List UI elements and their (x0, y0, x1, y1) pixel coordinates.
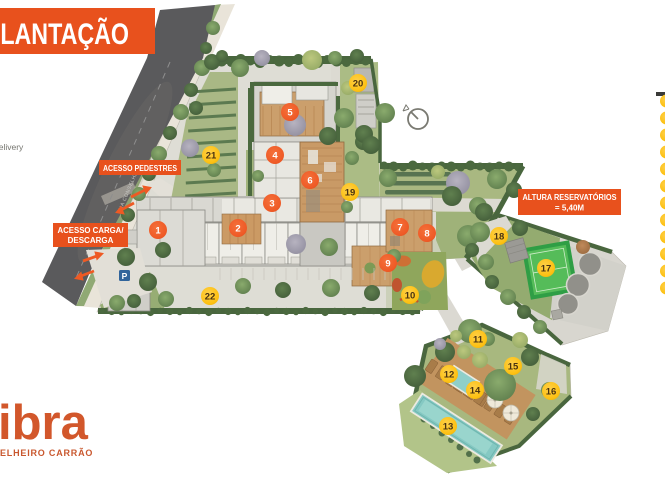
svg-text:IMPLANTAÇÃO: IMPLANTAÇÃO (0, 17, 129, 51)
svg-text:ELHEIRO CARRÃO: ELHEIRO CARRÃO (0, 448, 93, 458)
svg-text:19: 19 (345, 187, 356, 198)
svg-text:20: 20 (353, 78, 364, 89)
svg-text:4: 4 (272, 150, 278, 161)
svg-text:14: 14 (470, 385, 481, 396)
svg-text:5: 5 (287, 107, 293, 118)
svg-text:6: 6 (307, 175, 312, 186)
svg-text:21: 21 (206, 150, 217, 161)
svg-text:P: P (122, 271, 128, 281)
svg-text:16: 16 (546, 386, 557, 397)
svg-text:13: 13 (443, 421, 454, 432)
svg-text:= 5,40M: = 5,40M (555, 204, 584, 213)
svg-text:ibra: ibra (0, 396, 89, 450)
svg-text:12: 12 (444, 369, 455, 380)
svg-text:18: 18 (494, 231, 505, 242)
svg-text:ALTURA RESERVATÓRIOS: ALTURA RESERVATÓRIOS (523, 193, 618, 202)
svg-text:ACESSO PEDESTRES: ACESSO PEDESTRES (103, 164, 178, 173)
svg-text:17: 17 (541, 263, 552, 274)
svg-text:22: 22 (205, 291, 216, 302)
svg-text:11: 11 (473, 334, 484, 345)
svg-text:15: 15 (508, 361, 519, 372)
svg-text:2: 2 (235, 223, 240, 234)
svg-text:9: 9 (385, 258, 390, 269)
svg-text:delivery: delivery (0, 142, 24, 152)
svg-text:1: 1 (155, 225, 161, 236)
svg-text:7: 7 (397, 222, 402, 233)
svg-text:8: 8 (424, 228, 429, 239)
svg-text:10: 10 (405, 290, 416, 301)
svg-text:3: 3 (269, 198, 274, 209)
svg-text:DESCARGA: DESCARGA (68, 236, 114, 245)
svg-text:ACESSO CARGA/: ACESSO CARGA/ (58, 226, 125, 235)
